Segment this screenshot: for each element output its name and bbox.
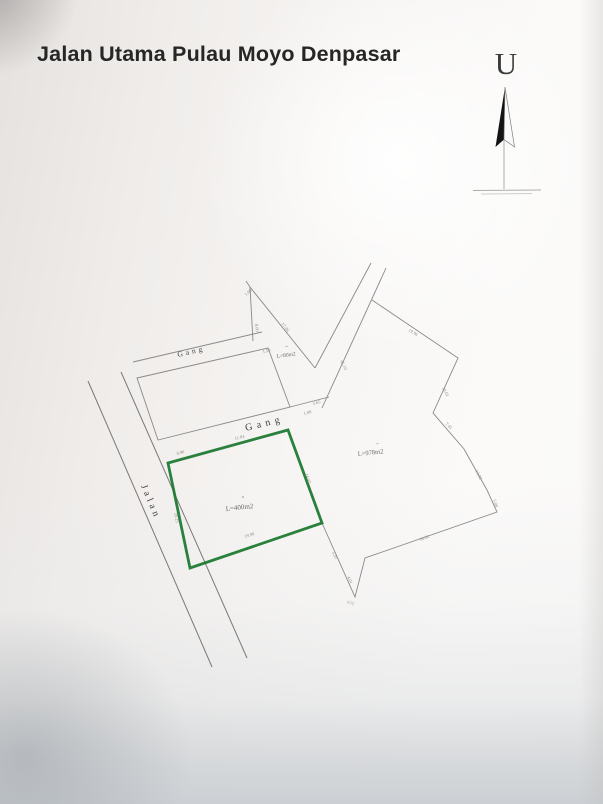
site-plan: U Jalan Gang bbox=[0, 0, 603, 804]
dim-label: 3.65 bbox=[312, 399, 322, 406]
plot-large-outline bbox=[322, 300, 497, 597]
plot-green-area: L=400m2 bbox=[225, 502, 254, 513]
road-diagonal-left-line bbox=[315, 263, 371, 368]
road-gang-diagonal: 45.10 bbox=[315, 263, 386, 408]
dim-label: 1.00 bbox=[303, 409, 313, 416]
dim-label: 19.96 bbox=[407, 328, 419, 338]
plot-green-outline bbox=[168, 430, 322, 568]
dim-label: 0.72 bbox=[347, 599, 355, 606]
photo-background: Jalan Utama Pulau Moyo Denpasar U Jalan … bbox=[0, 0, 603, 804]
plot-large-area: L=978m2 bbox=[357, 448, 383, 458]
road-jalan: Jalan bbox=[88, 372, 247, 667]
alley-gang-lower: Gang 3.65 1.00 11.04 bbox=[234, 399, 322, 441]
plot-green: L=400m2 8.90 14.02 19.90 20.25 bbox=[168, 430, 322, 568]
north-arrow-icon bbox=[473, 87, 541, 194]
dim-label: 20.25 bbox=[173, 512, 180, 524]
alley-gang-upper-label: Gang bbox=[176, 344, 206, 359]
road-diagonal-right-line bbox=[322, 268, 386, 408]
alley-gang-upper: Gang bbox=[133, 332, 262, 362]
road-jalan-label: Jalan bbox=[138, 483, 162, 521]
north-indicator: U bbox=[473, 46, 541, 194]
dim-label: 11.04 bbox=[234, 434, 246, 441]
dim-label: 7.45 bbox=[444, 421, 454, 431]
dim-label: 13.02 bbox=[474, 469, 483, 480]
plot-sliver: L=80m2 1.00 8.00 17.46 1.50 bbox=[243, 281, 315, 368]
area-mark bbox=[285, 346, 288, 347]
area-mark bbox=[376, 444, 379, 445]
plot-middle-rectangle bbox=[137, 348, 329, 440]
plot-sliver-area: L=80m2 bbox=[276, 351, 296, 360]
area-mark bbox=[242, 496, 244, 498]
north-label: U bbox=[495, 46, 517, 81]
road-jalan-left-line bbox=[88, 381, 212, 667]
road-jalan-right-line bbox=[121, 372, 247, 658]
dim-label: 16.52 bbox=[419, 534, 430, 542]
dim-label: 5.00 bbox=[492, 499, 499, 509]
dim-label: 8.00 bbox=[254, 324, 260, 333]
dim-label: 19.90 bbox=[244, 531, 256, 539]
dim-label: 4.01 bbox=[346, 575, 354, 584]
dim-label: 8.90 bbox=[176, 449, 186, 456]
plot-large: L=978m2 19.96 10.01 7.45 13.02 5.00 16.5… bbox=[322, 300, 499, 606]
dim-label: 45.10 bbox=[339, 359, 348, 371]
